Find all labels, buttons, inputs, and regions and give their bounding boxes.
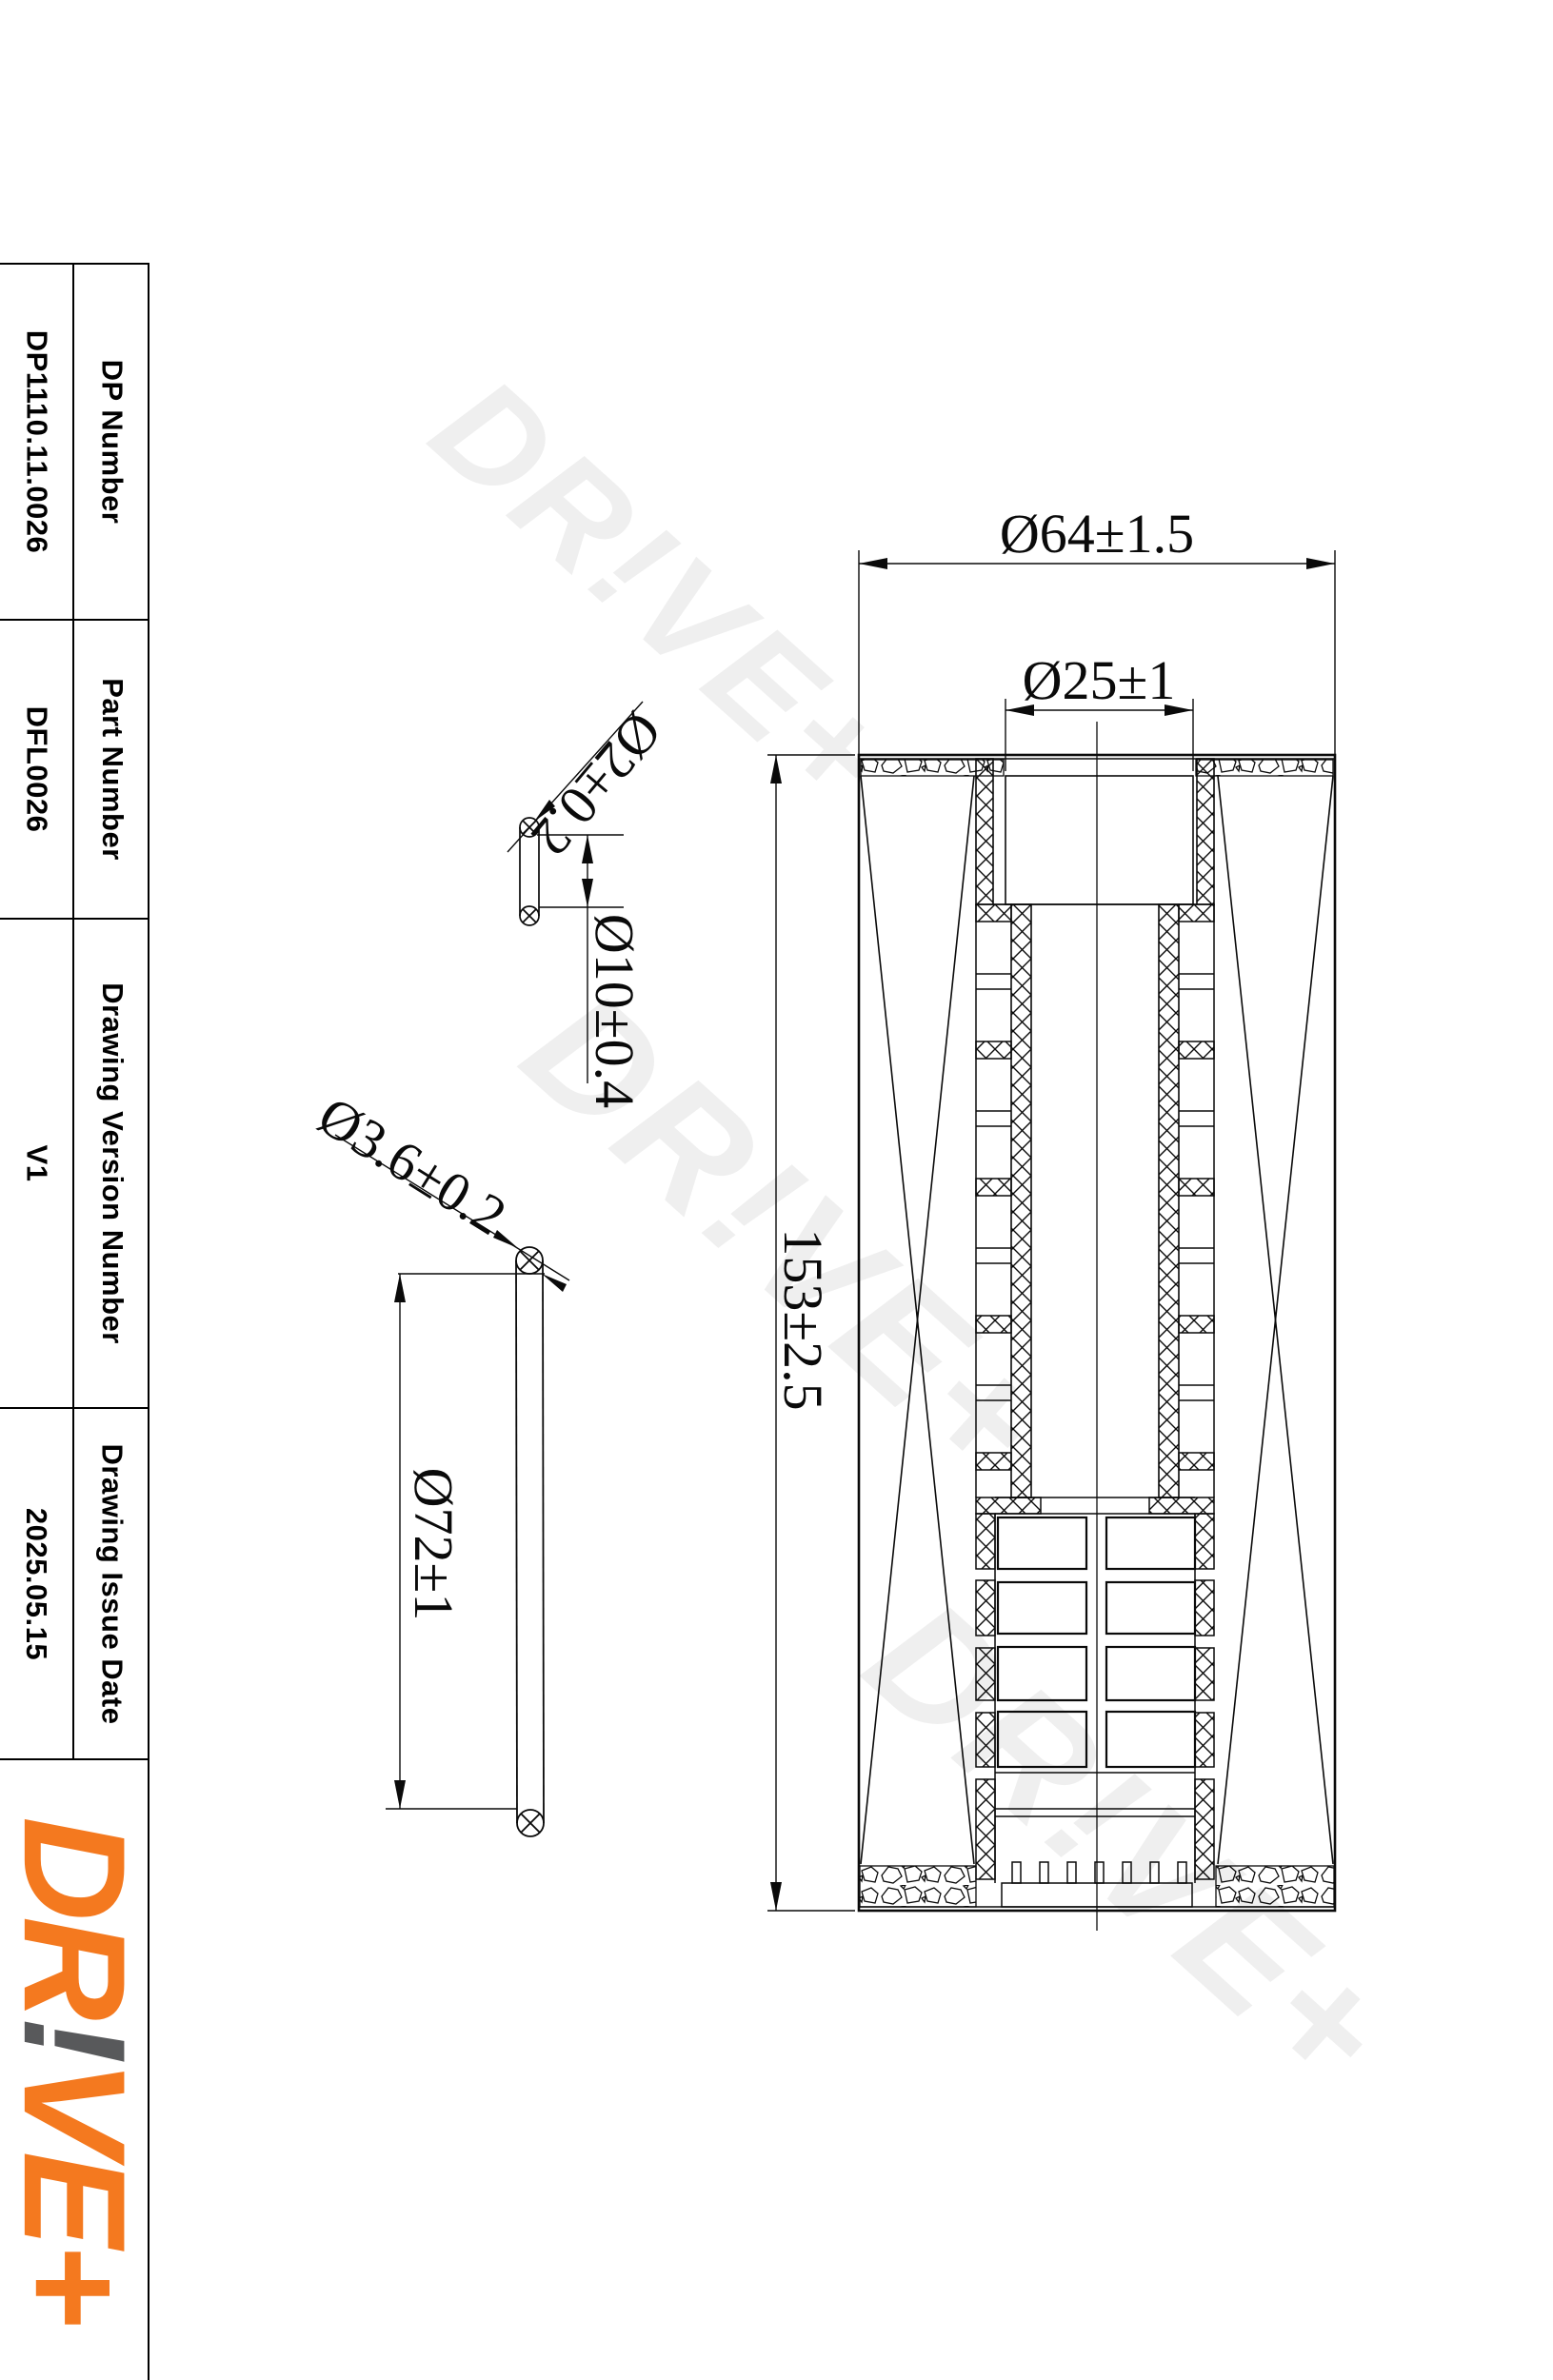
top-endcap-right: [1196, 760, 1333, 776]
title-block-label-dp-number: DP Number: [74, 265, 149, 621]
title-block-value-drawing-version: V1: [0, 920, 74, 1409]
bottom-tick-slots: [1012, 1862, 1186, 1883]
title-block-value-issue-date: 2025.05.15: [0, 1409, 74, 1758]
cage-wall-left: [976, 1514, 995, 1879]
title-block-label-issue-date: Drawing Issue Date: [74, 1409, 149, 1758]
tube-wall-top-right: [1197, 759, 1214, 904]
dim-outer-diameter-text: Ø64±1.5: [1000, 503, 1194, 565]
cage-shoulder: [976, 1497, 1214, 1514]
tube-windows-right: [1179, 904, 1214, 1497]
thread-cavity: [1005, 776, 1193, 904]
dim-large-oring-diameter-text: Ø72±1: [403, 1468, 465, 1621]
dim-small-oring-diameter-text: Ø10±0.4: [584, 914, 646, 1108]
dim-large-oring-cord-text: Ø3.6±0.2: [308, 1084, 517, 1247]
logo-exclamation: !: [0, 2015, 155, 2059]
dim-small-oring-cord-text: Ø2±0.2: [519, 701, 673, 868]
title-block-value-dp-number: DP1110.11.0026: [0, 265, 74, 621]
logo-veplus: VE+: [0, 2059, 155, 2323]
tube-windows-left: [976, 904, 1011, 1497]
cage-bottom-lines: [995, 1773, 1195, 1816]
bottom-endcap-left: [860, 1866, 976, 1907]
logo-dr: DR: [0, 1816, 155, 2016]
title-block-value-part-number: DFL0026: [0, 621, 74, 920]
technical-drawing: Ø64±1.5 Ø25±1 153±2.5 Ø2±0.2 Ø10±0.: [0, 0, 1553, 2380]
dim-total-height-text: 153±2.5: [772, 1228, 834, 1410]
cage-wall-right: [1195, 1514, 1214, 1879]
tube-inner-wall-left: [1011, 904, 1031, 1497]
tube-wall-top-left: [976, 759, 993, 904]
title-block-label-part-number: Part Number: [74, 621, 149, 920]
large-oring-section: [516, 1247, 544, 1836]
bottom-endcap-right: [1216, 1866, 1334, 1907]
title-block: DP1110.11.0026 DP Number DFL0026 Part Nu…: [0, 263, 149, 1760]
media-pleats-right: [1218, 776, 1333, 1864]
filter-section-view: [859, 722, 1335, 1931]
tube-inner-wall-right: [1159, 904, 1179, 1497]
brand-logo: DR!VE+: [0, 1758, 149, 2380]
dim-inner-diameter-text: Ø25±1: [1023, 649, 1176, 711]
media-pleats-left: [861, 776, 974, 1864]
title-block-label-drawing-version: Drawing Version Number: [74, 920, 149, 1409]
